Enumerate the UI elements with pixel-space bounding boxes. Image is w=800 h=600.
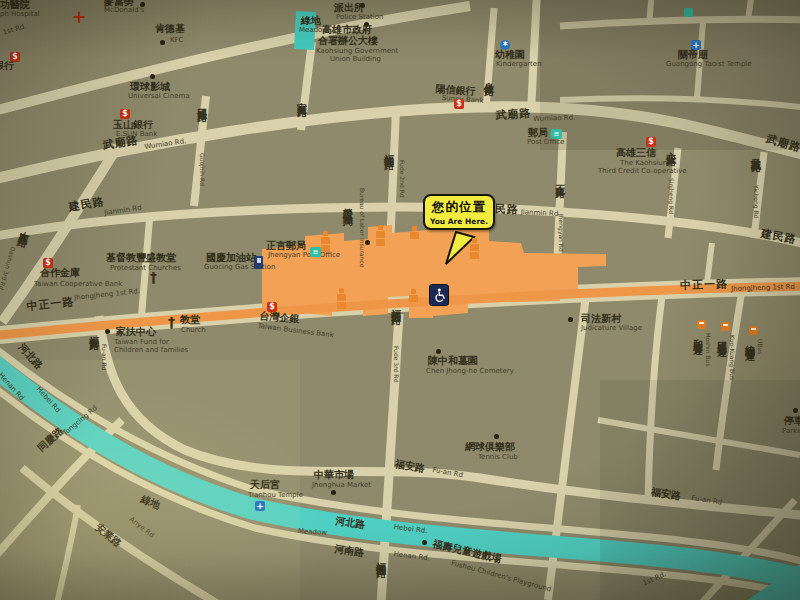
poi-parking-label: 停車場 [784, 416, 800, 427]
station-area-map: 功醫院 ph Hospital + 1st Rd. 麥當勞 McDonald's… [0, 0, 800, 600]
bank-icon-esun: $ [120, 109, 130, 119]
poi-judicature-label: 司法新村 [581, 314, 621, 325]
poi-post-office-north-label-en: Post Office [527, 139, 564, 146]
poi-jhonghua-market-label: 中華市場 [314, 470, 354, 481]
bus-stop-marker [410, 226, 419, 239]
poi-dot-family-fund [105, 329, 110, 334]
poi-post-office-north-label: 郵局 [528, 128, 548, 139]
road-label-fuan-w: 福安路 [88, 328, 99, 334]
road-minor-n1 [531, 0, 537, 112]
temple-icon-tianhou: + [255, 501, 265, 511]
poi-protestant-label: 基督教豐盛教堂 [106, 253, 176, 264]
poi-universal-cinema-label: 環球影城 [130, 82, 170, 93]
poi-cemetery-label-en: Chen Jhong-he Cemetery [426, 368, 514, 375]
poi-hospital-label: 功醫院 [0, 0, 30, 11]
poi-dot-judicature [568, 317, 573, 322]
bus-stop-marker [376, 225, 385, 246]
road-first-rd-nw [0, 6, 470, 112]
poi-kcg-label-en2: Union Building [330, 56, 381, 63]
poi-third-credit-label-en2: Third Credit Co-operative [598, 168, 687, 175]
poi-kuokuang-bus-label: 國光客運 [716, 333, 727, 341]
road-label-sinjheng-en: Sinjheng Rd [668, 178, 674, 214]
road-label-fude-3rd-en: Fude 3rd Rd [393, 346, 399, 382]
road-label-guojhih-en: Guojhih Rd [199, 153, 205, 186]
poi-tennis-club-label-en: Tennis Club [478, 454, 518, 461]
road-label-shensiou: 身修路 [483, 74, 494, 80]
you-are-here-zh: 您的位置 [425, 199, 493, 216]
poi-dot-jhonghua-market [331, 490, 336, 495]
poi-gas-station-label-en: Guocing Gas Station [204, 264, 276, 271]
bus-icon-kuokuang [721, 322, 730, 331]
poi-cooperative-bank-label-en: Taiwan Cooperative Bank [34, 281, 122, 288]
poi-police-label: 派出所 [334, 3, 364, 14]
poi-cemetery-label: 陳中和墓園 [428, 356, 478, 367]
poi-esun-bank-label: 玉山銀行 [113, 120, 153, 131]
poi-kfc-label: 肯德基 [155, 24, 185, 35]
road-label-jhengyan: 正言路 [554, 176, 565, 182]
accessible-elevator-icon [429, 284, 449, 306]
poi-gas-station-label: 國慶加油站 [206, 253, 256, 264]
bank-icon-sunny: $ [454, 99, 464, 109]
poi-dot-tennis-club [494, 434, 499, 439]
road-label-jhengyan-en: Jhengyan Rd [558, 214, 564, 252]
road-guojhih [194, 96, 206, 206]
shade-southeast [600, 380, 800, 600]
bus-stop-marker [409, 289, 418, 302]
bank-icon-third-credit: $ [646, 137, 656, 147]
post-office-icon-jhengyan: ≡ [310, 247, 321, 257]
poi-dot-playground [422, 540, 427, 545]
poi-police-label-en: Police Station [336, 14, 383, 21]
poi-hoshin-bus-label: 和欣客運 [692, 331, 703, 339]
poi-dot-parking [793, 408, 798, 413]
poi-kcg-label-1: 高雄市政府 [322, 25, 372, 36]
poi-hospital-label-en: ph Hospital [0, 11, 40, 18]
church-cross-icon: † [168, 314, 175, 330]
road-label-yicheng-en: Yicheng Rd [753, 185, 759, 218]
poi-universal-cinema-label-en: Universal Cinema [128, 93, 190, 100]
poi-kfc-label-en: KFC [170, 37, 184, 44]
poi-icon-teal-small [684, 8, 693, 17]
poi-guangong-temple-label: 關帝廟 [678, 50, 708, 61]
road-label-fude-2nd-en: Fude 2nd Rd [399, 160, 405, 198]
bus-stop-marker [470, 238, 479, 259]
poi-guangong-temple-label-en: Guangong Taoist Temple [666, 61, 752, 68]
poi-cooperative-bank-label: 合作金庫 [40, 268, 80, 279]
poi-dot-cemetery [436, 349, 441, 354]
poi-jhengyan-post-label: 正言郵局 [266, 241, 306, 252]
poi-jhengyan-post-label-en: Jhengyan Post Office [268, 252, 340, 259]
poi-kindergarten-north-label: 幼稚園 [495, 50, 525, 61]
poi-protestant-label-en: Protestant Churches [110, 265, 181, 272]
bus-icon-hoshin [697, 320, 706, 329]
gas-pump-icon [254, 256, 263, 269]
poi-family-fund-label: 家扶中心 [116, 327, 156, 338]
bus-stop-marker [337, 288, 346, 309]
road-label-fude-2nd: 福德二路 [383, 146, 394, 154]
poi-hoshin-bus-label-en: Hoshin Bus [705, 333, 711, 367]
road-label-sinjheng: 心正路 [665, 144, 676, 150]
poi-church-label: 教堂 [180, 315, 200, 326]
poi-dot-kfc [160, 40, 165, 45]
road-label-jiamai: 家賣路 [296, 95, 307, 101]
bus-stop-marker [321, 231, 330, 252]
poi-family-fund-label-en2: Children and families [114, 347, 188, 354]
road-label-jhongjheng-e: 中正一路 [680, 278, 728, 291]
road-label-guojhih: 國治路 [196, 100, 207, 106]
poi-ubus-label: 統聯客運 [744, 337, 755, 345]
poi-parking-label-en: Parking lot [782, 428, 800, 435]
church-cross-icon-protestant: † [150, 269, 157, 285]
you-are-here-callout: 您的位置 You Are Here. [423, 194, 495, 230]
road-label-wumiao-c: 武廟路 [495, 107, 532, 121]
poi-judicature-label-en: Judicature Village [581, 325, 642, 332]
map-canvas [0, 0, 800, 600]
poi-labor-insurance-label-en: Bureau of Labor Insurance [359, 188, 365, 267]
wheelchair-glyph [433, 288, 445, 302]
poi-tianhou-temple-label-en: Tianhou Temple [248, 492, 303, 499]
hospital-cross-icon: + [72, 10, 86, 24]
road-label-fude-3rd: 福德三路 [390, 301, 401, 309]
poi-meadow-north-label: 綠地 [301, 16, 321, 27]
poi-mcdonalds-label-en: McDonald's [104, 7, 144, 14]
poi-tennis-club-label: 網球俱樂部 [465, 442, 515, 453]
poi-dot-universal-cinema [150, 74, 155, 79]
poi-kuokuang-bus-label-en: Kuo-Kuang Bus [729, 335, 735, 380]
poi-third-credit-label: 高雄三信 [616, 148, 656, 159]
poi-jhonghua-market-label-en: Jhonghua Market [312, 482, 371, 489]
road-label-yicheng: 意誠路 [750, 150, 761, 156]
poi-tianhou-temple-label: 天后宮 [250, 480, 280, 491]
road-shensiou [486, 8, 494, 110]
shade-northeast [540, 0, 800, 150]
poi-ubus-label-en: UBus [757, 339, 763, 354]
poi-church-label-en: Church [181, 327, 206, 334]
you-are-here-en: You Are Here. [425, 217, 493, 226]
poi-edge-bank-label: 銀行 [0, 61, 14, 72]
poi-labor-insurance-label: 勞工保險局 [342, 200, 353, 210]
road-label-fude-3rd-s: 福德三路 [375, 554, 386, 562]
poi-kcg-label-2: 合署辦公大樓 [318, 36, 378, 47]
road-label-fuan-w-en: Fu-an Rd [101, 344, 107, 370]
poi-kindergarten-north-label-en: Kindergarten [496, 61, 542, 68]
poi-dot-labor-insurance [365, 240, 370, 245]
road-label-wumiao-c-en: Wumiao Rd. [533, 115, 575, 124]
bus-icon-ubus [749, 326, 758, 335]
